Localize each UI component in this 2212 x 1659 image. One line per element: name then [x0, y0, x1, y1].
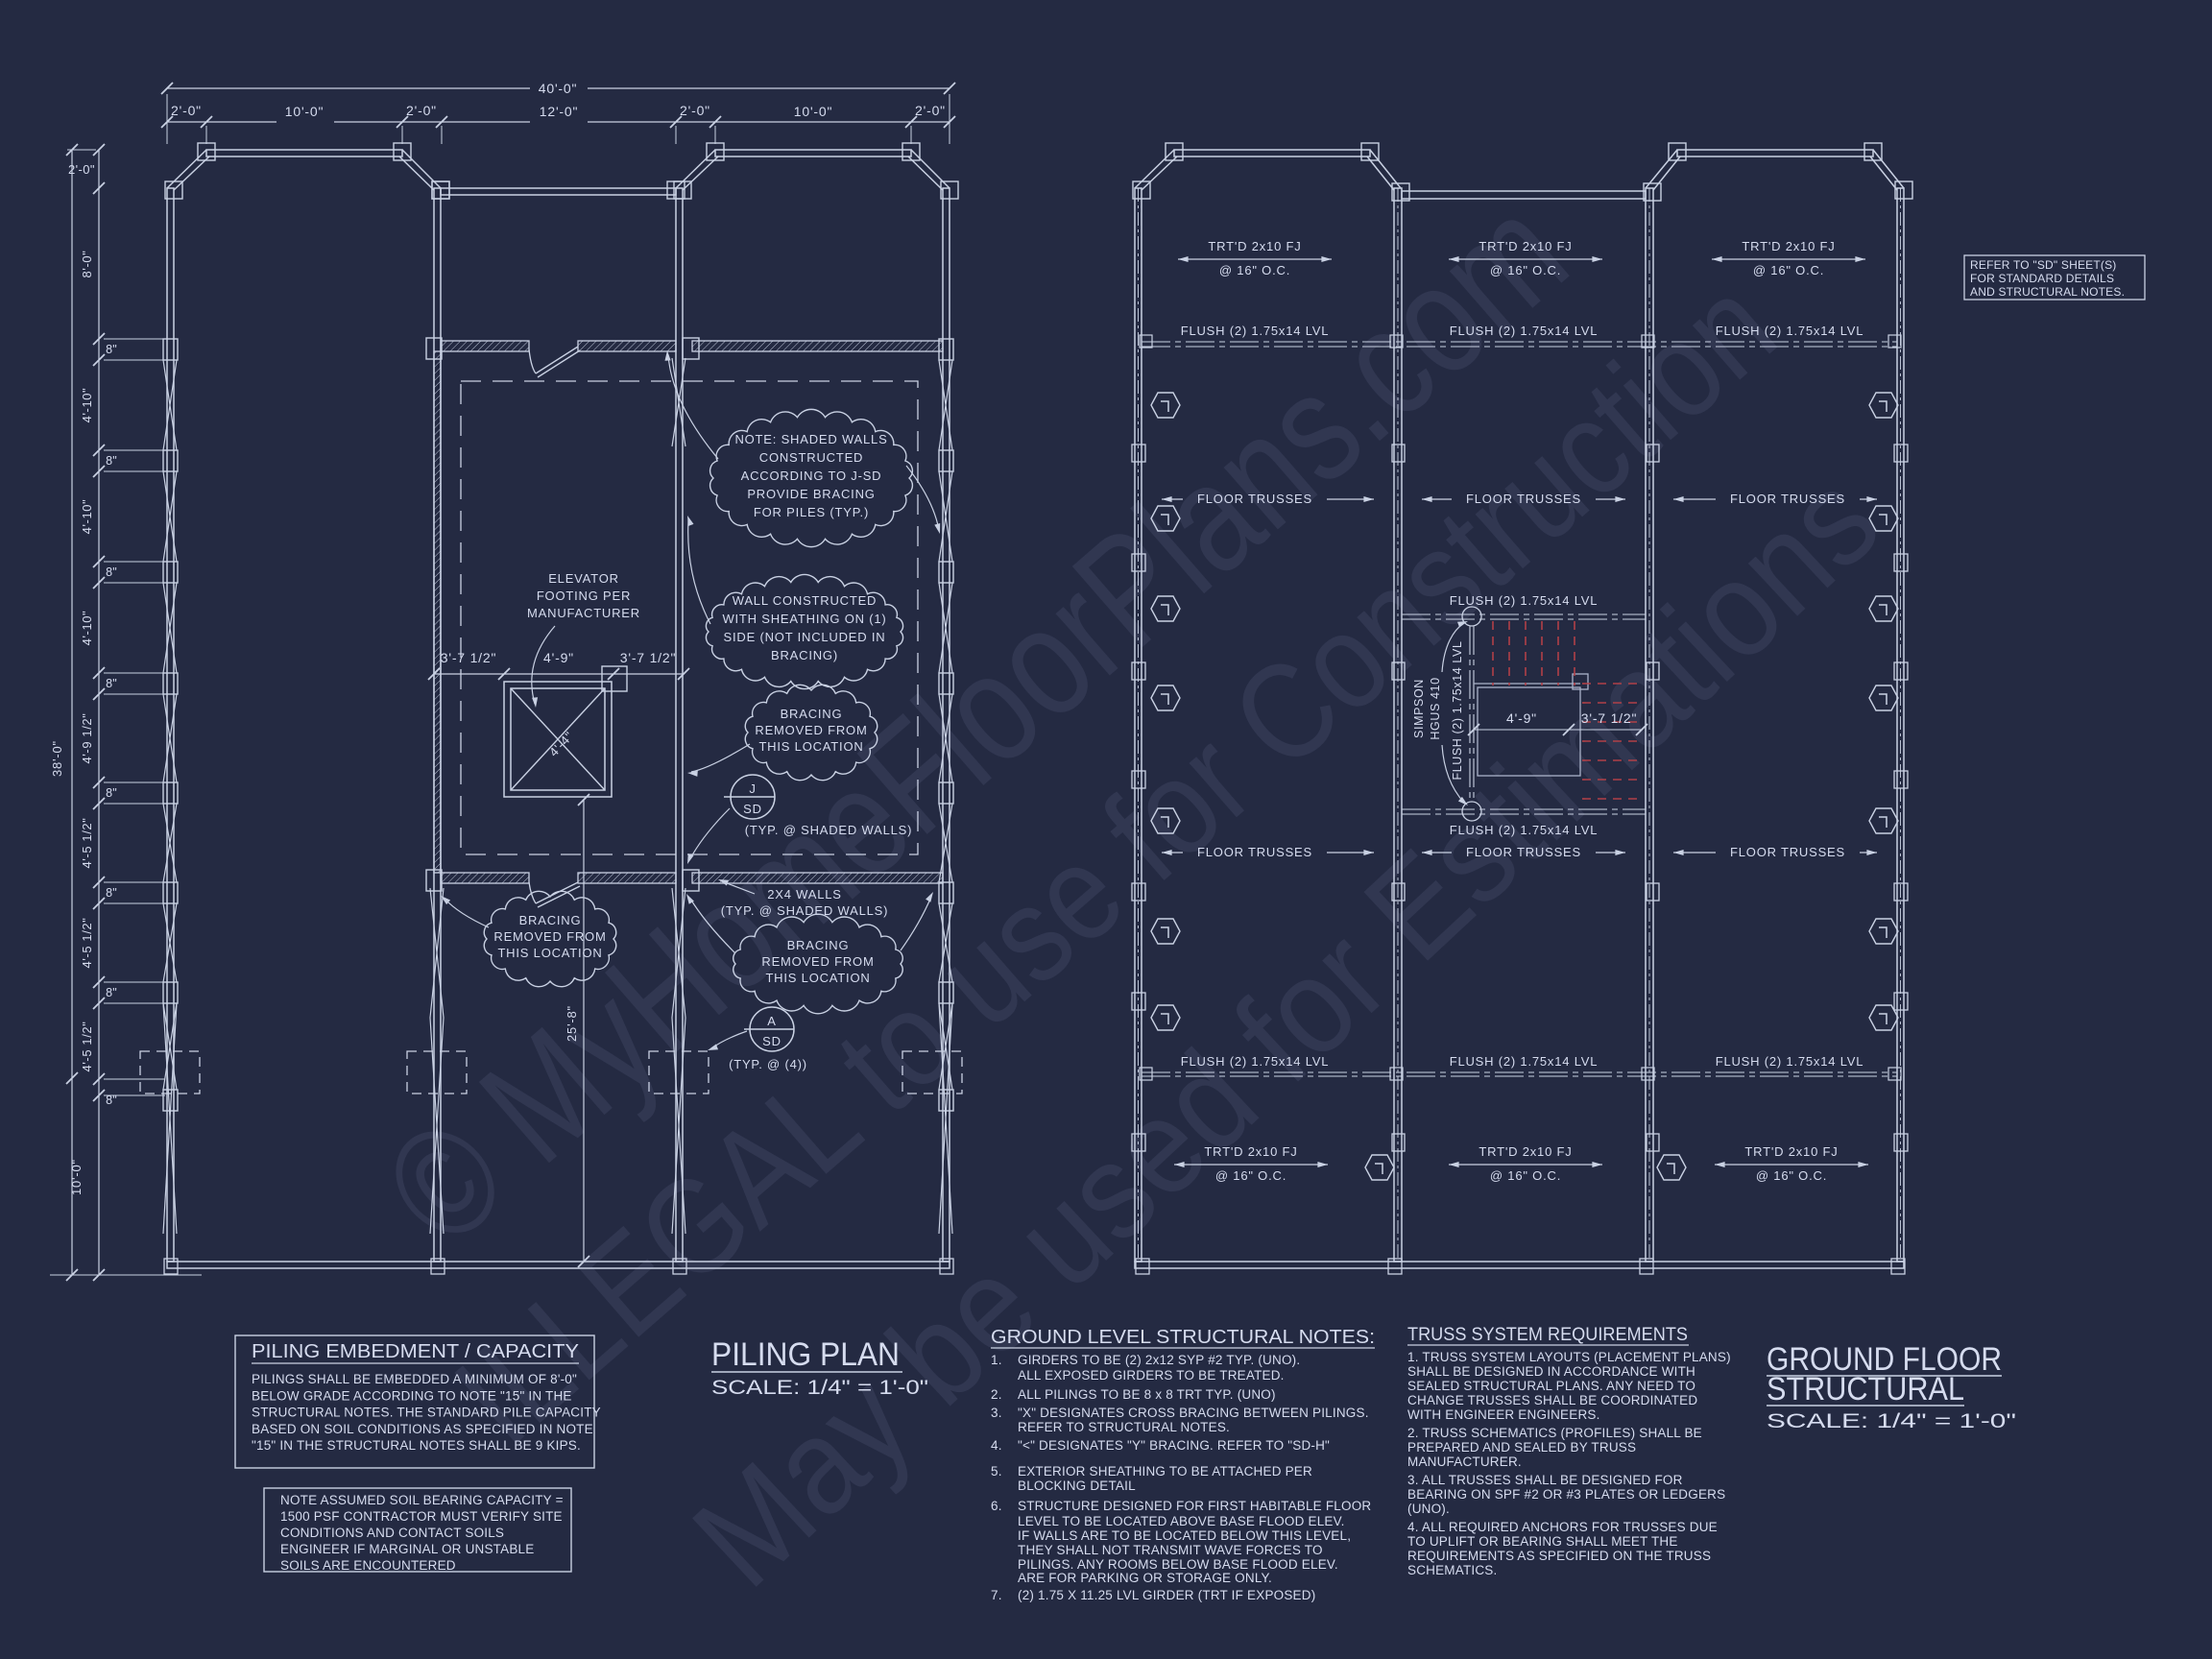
svg-text:@ 16" O.C.: @ 16" O.C.: [1219, 263, 1290, 277]
svg-text:FLOOR TRUSSES: FLOOR TRUSSES: [1197, 492, 1312, 506]
svg-text:TRT'D 2x10 FJ: TRT'D 2x10 FJ: [1742, 239, 1835, 253]
svg-text:2'-0": 2'-0": [680, 103, 710, 118]
svg-text:PILING EMBEDMENT / CAPACITY: PILING EMBEDMENT / CAPACITY: [252, 1341, 579, 1362]
svg-text:BEARING ON SPF #2 OR #3 PLATES: BEARING ON SPF #2 OR #3 PLATES OR LEDGER…: [1407, 1487, 1725, 1502]
svg-text:10'-0": 10'-0": [69, 1159, 84, 1195]
svg-text:8": 8": [106, 1094, 117, 1107]
svg-text:REMOVED FROM: REMOVED FROM: [755, 723, 867, 737]
svg-text:SHALL BE DESIGNED IN ACCORDANC: SHALL BE DESIGNED IN ACCORDANCE WITH: [1407, 1364, 1695, 1379]
svg-text:@ 16" O.C.: @ 16" O.C.: [1753, 263, 1824, 277]
svg-text:38'-0": 38'-0": [50, 740, 64, 777]
svg-text:FLUSH (2) 1.75x14 LVL: FLUSH (2) 1.75x14 LVL: [1450, 823, 1599, 837]
svg-text:FLUSH (2) 1.75x14 LVL: FLUSH (2) 1.75x14 LVL: [1181, 324, 1330, 338]
svg-text:FLOOR TRUSSES: FLOOR TRUSSES: [1730, 492, 1845, 506]
svg-text:5.: 5.: [991, 1464, 1002, 1479]
svg-text:FLOOR TRUSSES: FLOOR TRUSSES: [1466, 492, 1581, 506]
svg-text:FLUSH (2) 1.75x14 LVL: FLUSH (2) 1.75x14 LVL: [1451, 640, 1464, 780]
svg-text:(TYP. @ SHADED WALLS): (TYP. @ SHADED WALLS): [745, 823, 912, 837]
svg-text:EXTERIOR SHEATHING TO BE ATTAC: EXTERIOR SHEATHING TO BE ATTACHED PER: [1018, 1464, 1312, 1479]
svg-text:BELOW GRADE ACCORDING TO NOTE: BELOW GRADE ACCORDING TO NOTE "15" IN TH…: [252, 1388, 572, 1403]
svg-text:2'-0": 2'-0": [171, 103, 202, 118]
svg-text:3'-7 1/2": 3'-7 1/2": [441, 650, 496, 665]
svg-text:"15" IN THE STRUCTURAL NOTES S: "15" IN THE STRUCTURAL NOTES SHALL BE 9 …: [252, 1438, 581, 1453]
svg-text:4'-5 1/2": 4'-5 1/2": [80, 918, 94, 969]
svg-text:SIMPSON: SIMPSON: [1412, 679, 1426, 738]
svg-text:A: A: [767, 1014, 776, 1028]
svg-text:BLOCKING DETAIL: BLOCKING DETAIL: [1018, 1479, 1136, 1493]
svg-text:2.: 2.: [991, 1387, 1002, 1402]
svg-text:FLUSH (2) 1.75x14 LVL: FLUSH (2) 1.75x14 LVL: [1450, 1054, 1599, 1069]
svg-text:STRUCTURE DESIGNED FOR FIRST H: STRUCTURE DESIGNED FOR FIRST HABITABLE F…: [1018, 1499, 1371, 1513]
svg-text:REFER TO "SD" SHEET(S): REFER TO "SD" SHEET(S): [1970, 258, 2117, 272]
svg-text:3. ALL TRUSSES SHALL BE DESIGN: 3. ALL TRUSSES SHALL BE DESIGNED FOR: [1407, 1473, 1683, 1487]
svg-text:CONDITIONS AND CONTACT SOILS: CONDITIONS AND CONTACT SOILS: [280, 1526, 504, 1540]
svg-text:4'-9": 4'-9": [1506, 710, 1537, 726]
svg-text:SOILS ARE ENCOUNTERED: SOILS ARE ENCOUNTERED: [280, 1558, 456, 1573]
svg-text:8": 8": [106, 343, 117, 356]
svg-text:FOR PILES (TYP.): FOR PILES (TYP.): [754, 505, 869, 519]
svg-text:FLUSH (2) 1.75x14 LVL: FLUSH (2) 1.75x14 LVL: [1450, 593, 1599, 608]
svg-text:1. TRUSS SYSTEM LAYOUTS (PLACE: 1. TRUSS SYSTEM LAYOUTS (PLACEMENT PLANS…: [1407, 1350, 1731, 1364]
svg-text:FOR STANDARD DETAILS: FOR STANDARD DETAILS: [1970, 272, 2114, 285]
svg-text:3'-7 1/2": 3'-7 1/2": [1581, 710, 1637, 726]
svg-text:THIS LOCATION: THIS LOCATION: [497, 946, 602, 960]
svg-text:ELEVATOR: ELEVATOR: [548, 571, 619, 586]
svg-text:10'-0": 10'-0": [285, 104, 324, 119]
svg-text:MANUFACTURER.: MANUFACTURER.: [1407, 1455, 1522, 1469]
svg-text:STRUCTURAL NOTES. THE STANDARD: STRUCTURAL NOTES. THE STANDARD PILE CAPA…: [252, 1406, 601, 1420]
svg-text:FOOTING PER: FOOTING PER: [537, 589, 631, 603]
svg-text:IF WALLS ARE TO BE LOCATED BEL: IF WALLS ARE TO BE LOCATED BELOW THIS LE…: [1018, 1528, 1351, 1543]
svg-text:TRT'D 2x10 FJ: TRT'D 2x10 FJ: [1204, 1144, 1297, 1159]
svg-text:THEY SHALL NOT TRANSMIT WAVE F: THEY SHALL NOT TRANSMIT WAVE FORCES TO: [1018, 1543, 1323, 1557]
svg-text:NOTE: SHADED WALLS: NOTE: SHADED WALLS: [734, 432, 887, 446]
svg-text:(2) 1.75 X 11.25 LVL GIRDER (T: (2) 1.75 X 11.25 LVL GIRDER (TRT IF EXPO…: [1018, 1588, 1315, 1602]
svg-text:1.: 1.: [991, 1353, 1002, 1367]
svg-text:4'-5 1/2": 4'-5 1/2": [80, 1022, 94, 1072]
svg-text:8": 8": [106, 677, 117, 690]
svg-text:2. TRUSS SCHEMATICS (PROFILES): 2. TRUSS SCHEMATICS (PROFILES) SHALL BE: [1407, 1426, 1702, 1440]
svg-text:STRUCTURAL: STRUCTURAL: [1767, 1371, 1964, 1407]
svg-text:8": 8": [106, 986, 117, 999]
svg-text:4'-10": 4'-10": [80, 388, 94, 423]
svg-text:@ 16" O.C.: @ 16" O.C.: [1490, 263, 1561, 277]
svg-text:BRACING: BRACING: [787, 938, 850, 952]
svg-text:SCHEMATICS.: SCHEMATICS.: [1407, 1563, 1497, 1577]
svg-text:1500 PSF CONTRACTOR MUST VERIF: 1500 PSF CONTRACTOR MUST VERIFY SITE: [280, 1509, 563, 1524]
svg-text:SD: SD: [743, 802, 762, 816]
svg-text:J: J: [749, 781, 756, 796]
svg-text:8": 8": [106, 565, 117, 579]
svg-text:2'-0": 2'-0": [915, 103, 946, 118]
svg-text:TRT'D 2x10 FJ: TRT'D 2x10 FJ: [1744, 1144, 1838, 1159]
svg-text:REMOVED FROM: REMOVED FROM: [761, 954, 874, 969]
svg-text:GROUND LEVEL STRUCTURAL NOTES:: GROUND LEVEL STRUCTURAL NOTES:: [991, 1327, 1375, 1348]
svg-text:7.: 7.: [991, 1588, 1002, 1602]
svg-text:BRACING: BRACING: [781, 707, 843, 721]
svg-text:@ 16" O.C.: @ 16" O.C.: [1490, 1168, 1561, 1183]
svg-text:"X" DESIGNATES CROSS BRACING B: "X" DESIGNATES CROSS BRACING BETWEEN PIL…: [1018, 1406, 1369, 1420]
svg-text:WALL CONSTRUCTED: WALL CONSTRUCTED: [733, 593, 878, 608]
svg-text:FLOOR TRUSSES: FLOOR TRUSSES: [1466, 845, 1581, 859]
svg-text:4. ALL REQUIRED ANCHORS FOR TR: 4. ALL REQUIRED ANCHORS FOR TRUSSES DUE: [1407, 1520, 1718, 1534]
svg-text:8": 8": [106, 886, 117, 900]
svg-text:4'-10": 4'-10": [80, 611, 94, 646]
svg-text:PILINGS SHALL BE EMBEDDED A MI: PILINGS SHALL BE EMBEDDED A MINIMUM OF 8…: [252, 1372, 577, 1386]
svg-text:6.: 6.: [991, 1499, 1002, 1513]
svg-text:FLOOR TRUSSES: FLOOR TRUSSES: [1730, 845, 1845, 859]
svg-text:PROVIDE BRACING: PROVIDE BRACING: [747, 487, 875, 501]
svg-text:4'-10": 4'-10": [80, 499, 94, 535]
svg-text:SCALE: 1/4" = 1'-0": SCALE: 1/4" = 1'-0": [711, 1377, 928, 1399]
svg-text:AND STRUCTURAL NOTES.: AND STRUCTURAL NOTES.: [1970, 285, 2125, 299]
svg-text:CHANGE TRUSSES SHALL BE COORDI: CHANGE TRUSSES SHALL BE COORDINATED: [1407, 1393, 1697, 1407]
svg-text:3.: 3.: [991, 1406, 1002, 1420]
svg-text:TRUSS SYSTEM REQUIREMENTS: TRUSS SYSTEM REQUIREMENTS: [1407, 1325, 1688, 1345]
svg-text:TO UPLIFT OR BEARING SHALL MEE: TO UPLIFT OR BEARING SHALL MEET THE: [1407, 1534, 1678, 1549]
svg-text:4'-5 1/2": 4'-5 1/2": [80, 818, 94, 869]
svg-text:"<" DESIGNATES "Y" BRACING. R: "<" DESIGNATES "Y" BRACING. REFER TO "SD…: [1018, 1438, 1330, 1453]
svg-text:TRT'D 2x10 FJ: TRT'D 2x10 FJ: [1479, 1144, 1572, 1159]
svg-text:FLOOR TRUSSES: FLOOR TRUSSES: [1197, 845, 1312, 859]
svg-text:8": 8": [106, 786, 117, 800]
svg-text:2'-0": 2'-0": [406, 103, 437, 118]
svg-text:FLUSH (2) 1.75x14 LVL: FLUSH (2) 1.75x14 LVL: [1450, 324, 1599, 338]
svg-text:SD: SD: [762, 1034, 781, 1048]
svg-text:MANUFACTURER: MANUFACTURER: [527, 606, 640, 620]
svg-text:BRACING): BRACING): [771, 648, 838, 662]
svg-text:4'-9 1/2": 4'-9 1/2": [80, 713, 94, 764]
svg-text:REQUIREMENTS AS SPECIFIED ON T: REQUIREMENTS AS SPECIFIED ON THE TRUSS: [1407, 1549, 1711, 1563]
svg-text:TRT'D 2x10 FJ: TRT'D 2x10 FJ: [1208, 239, 1301, 253]
svg-text:ENGINEER IF MARGINAL OR UNSTAB: ENGINEER IF MARGINAL OR UNSTABLE: [280, 1542, 534, 1556]
svg-text:THIS LOCATION: THIS LOCATION: [765, 971, 870, 985]
svg-text:FLUSH (2) 1.75x14 LVL: FLUSH (2) 1.75x14 LVL: [1181, 1054, 1330, 1069]
svg-text:SIDE (NOT INCLUDED IN: SIDE (NOT INCLUDED IN: [724, 630, 886, 644]
svg-text:ACCORDING TO J-SD: ACCORDING TO J-SD: [741, 469, 882, 483]
svg-text:CONSTRUCTED: CONSTRUCTED: [759, 450, 863, 465]
svg-text:WITH ENGINEER ENGINEERS.: WITH ENGINEER ENGINEERS.: [1407, 1407, 1600, 1422]
svg-text:BRACING: BRACING: [519, 913, 582, 927]
svg-text:BASED ON SOIL CONDITIONS AS SP: BASED ON SOIL CONDITIONS AS SPECIFIED IN…: [252, 1422, 593, 1436]
svg-text:REFER TO STRUCTURAL NOTES.: REFER TO STRUCTURAL NOTES.: [1018, 1420, 1230, 1434]
svg-text:4'-9": 4'-9": [543, 650, 574, 665]
svg-text:TRT'D 2x10 FJ: TRT'D 2x10 FJ: [1479, 239, 1572, 253]
svg-text:2X4 WALLS: 2X4 WALLS: [767, 887, 842, 902]
svg-text:ALL EXPOSED GIRDERS TO BE TREA: ALL EXPOSED GIRDERS TO BE TREATED.: [1018, 1368, 1285, 1382]
svg-text:@ 16" O.C.: @ 16" O.C.: [1215, 1168, 1286, 1183]
svg-text:GIRDERS TO BE (2) 2x12 SYP #2: GIRDERS TO BE (2) 2x12 SYP #2 TYP. (UNO)…: [1018, 1353, 1300, 1367]
svg-text:4.: 4.: [991, 1438, 1002, 1453]
svg-text:ALL PILINGS TO BE 8 x 8 TRT TY: ALL PILINGS TO BE 8 x 8 TRT TYP. (UNO): [1018, 1387, 1276, 1402]
svg-text:@ 16" O.C.: @ 16" O.C.: [1756, 1168, 1827, 1183]
svg-text:8": 8": [106, 454, 117, 468]
svg-text:LEVEL TO BE LOCATED ABOVE BASE: LEVEL TO BE LOCATED ABOVE BASE FLOOD ELE…: [1018, 1514, 1345, 1528]
svg-text:8'-0": 8'-0": [80, 251, 94, 278]
svg-text:(UNO).: (UNO).: [1407, 1502, 1450, 1516]
svg-text:NOTE ASSUMED SOIL BEARING CAPA: NOTE ASSUMED SOIL BEARING CAPACITY =: [280, 1493, 564, 1507]
svg-text:FLUSH (2) 1.75x14 LVL: FLUSH (2) 1.75x14 LVL: [1716, 1054, 1864, 1069]
svg-text:PILINGS. ANY ROOMS BELOW BASE: PILINGS. ANY ROOMS BELOW BASE FLOOD ELEV…: [1018, 1557, 1338, 1572]
svg-text:FLUSH (2) 1.75x14 LVL: FLUSH (2) 1.75x14 LVL: [1716, 324, 1864, 338]
svg-text:REMOVED FROM: REMOVED FROM: [493, 929, 606, 944]
svg-text:3'-7 1/2": 3'-7 1/2": [620, 650, 676, 665]
svg-text:40'-0": 40'-0": [539, 81, 577, 96]
svg-text:PREPARED AND SEALED BY TRUSS: PREPARED AND SEALED BY TRUSS: [1407, 1440, 1636, 1455]
svg-text:10'-0": 10'-0": [794, 104, 832, 119]
svg-text:SCALE: 1/4" = 1'-0": SCALE: 1/4" = 1'-0": [1767, 1410, 2016, 1432]
svg-text:12'-0": 12'-0": [540, 104, 578, 119]
svg-text:(TYP. @ (4)): (TYP. @ (4)): [729, 1057, 807, 1071]
svg-text:ARE FOR PARKING OR STORAGE ONL: ARE FOR PARKING OR STORAGE ONLY.: [1018, 1571, 1272, 1585]
svg-text:(TYP. @ SHADED WALLS): (TYP. @ SHADED WALLS): [721, 903, 888, 918]
svg-text:WITH SHEATHING ON (1): WITH SHEATHING ON (1): [722, 612, 886, 626]
svg-text:25'-8": 25'-8": [565, 1005, 579, 1042]
svg-text:HGUS 410: HGUS 410: [1429, 677, 1442, 739]
svg-text:PILING PLAN: PILING PLAN: [711, 1336, 900, 1373]
svg-text:SEALED STRUCTURAL PLANS. ANY N: SEALED STRUCTURAL PLANS. ANY NEED TO: [1407, 1379, 1695, 1393]
svg-text:THIS LOCATION: THIS LOCATION: [758, 739, 863, 754]
